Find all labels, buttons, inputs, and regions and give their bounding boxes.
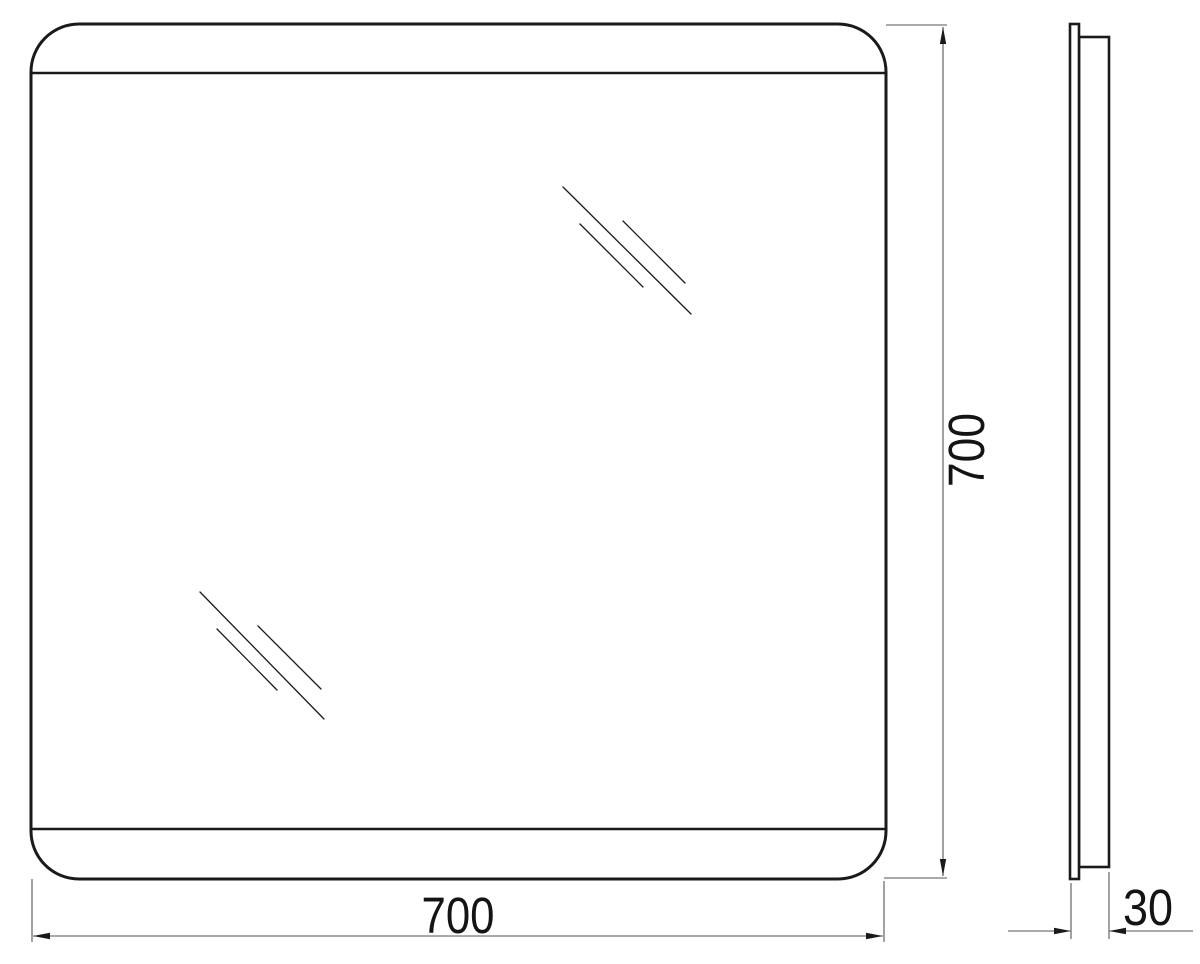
mirror-technical-drawing: 700 700 30 (0, 0, 1200, 964)
arrowhead (940, 27, 946, 44)
height-dimension-label: 700 (938, 413, 995, 487)
width-dimension-label: 700 (422, 887, 495, 944)
side-view (1070, 24, 1109, 879)
side-body-panel (1079, 37, 1109, 867)
mirror-outline (31, 24, 886, 879)
side-glass-panel (1070, 24, 1079, 879)
arrowhead (33, 933, 50, 939)
arrowhead (940, 859, 946, 876)
drawing-canvas: 700 700 30 (0, 0, 1200, 964)
front-view (31, 24, 886, 879)
arrowhead (866, 933, 883, 939)
depth-dimension-label: 30 (1123, 879, 1173, 936)
arrowhead (1054, 928, 1071, 934)
